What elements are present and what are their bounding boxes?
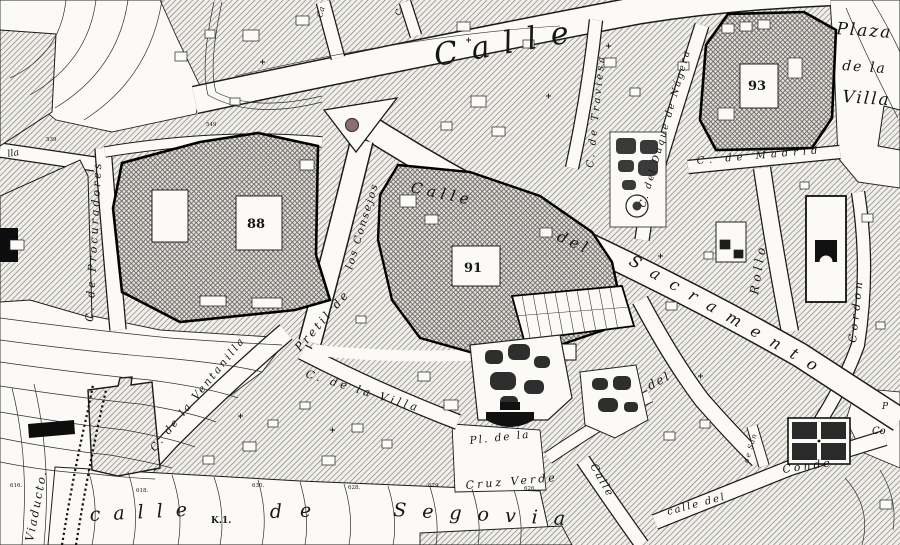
garden-center-dot: [818, 440, 821, 443]
edge-label-co: Co: [872, 426, 886, 437]
courtyard: [200, 296, 226, 306]
fountain-structure: [500, 402, 520, 410]
kilometre-marker: K.1.: [211, 516, 231, 526]
elevation-marker: 539: [46, 137, 57, 143]
garden-quadrant: [821, 422, 846, 439]
courtyard: [252, 298, 282, 308]
courtyard: [740, 22, 752, 31]
plaza-villa-label-2: de la: [842, 58, 888, 77]
courtyard: [758, 20, 770, 29]
garden-quadrant: [792, 443, 817, 460]
elevation-marker: 629.: [428, 483, 440, 489]
block-number-88: 88: [247, 217, 265, 232]
church-apse-mark: [820, 256, 833, 269]
courtyard: [722, 24, 734, 33]
elevation-marker: 549: [206, 122, 217, 128]
fountain-dot: [346, 119, 359, 132]
courtyard: [540, 228, 552, 237]
block-number-91: 91: [464, 261, 482, 276]
courtyard: [425, 215, 438, 224]
historic-city-map: Calle Plaza de la Villa 93 88 91 C. de T…: [0, 0, 900, 545]
map-canvas: Calle Plaza de la Villa 93 88 91 C. de T…: [0, 0, 900, 545]
garden-quadrant: [792, 422, 817, 439]
street-label-segovia-2: de: [269, 499, 329, 523]
courtyard: [788, 58, 802, 78]
edge-label-lla: lla: [7, 147, 21, 160]
elevation-marker: 630.: [252, 483, 264, 489]
elevation-marker: 616.: [10, 483, 22, 489]
plaza-villa-label-3: Villa: [842, 87, 892, 110]
plaza-villa-label-1: Plaza: [835, 19, 893, 43]
monument-block-88: [113, 133, 330, 322]
elevation-marker: 618.: [136, 488, 148, 494]
elevation-marker: 626.: [524, 486, 536, 492]
edge-label-p: P: [881, 402, 889, 412]
elevation-marker: 628.: [348, 485, 360, 491]
courtyard: [718, 108, 734, 120]
courtyard: [152, 190, 188, 242]
block-number-93: 93: [748, 79, 766, 94]
